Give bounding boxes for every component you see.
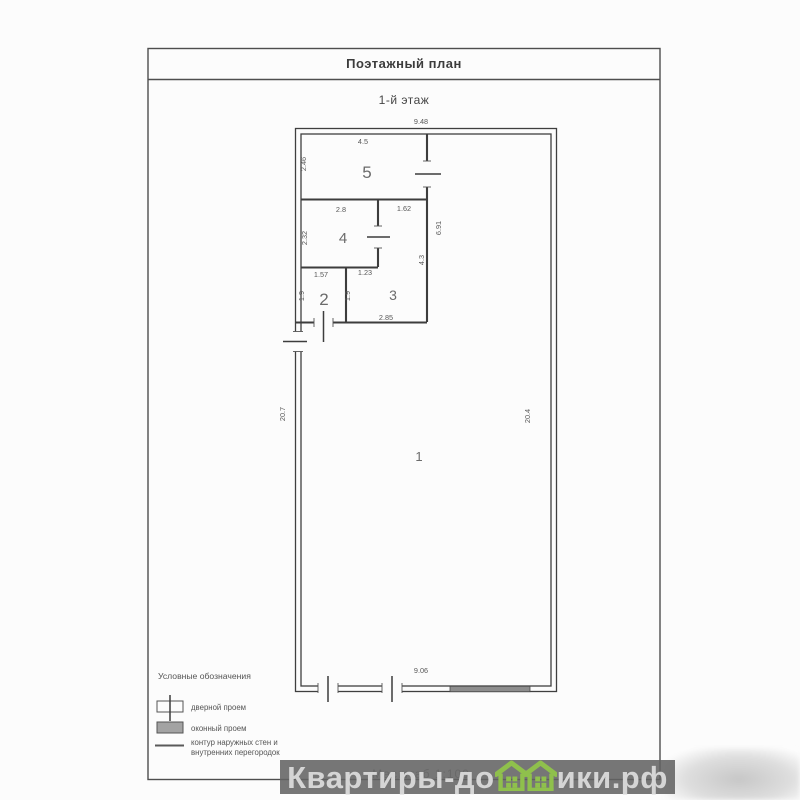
door-opening-symbol: [382, 676, 402, 702]
dim-inner-width-bottom: 9.06: [414, 666, 428, 675]
scanned-floor-plan-page: Поэтажный план 1-й этаж: [0, 0, 800, 800]
dim-overall-width-top: 9.48: [414, 117, 428, 126]
dim-right-section-depth: 6.91: [434, 221, 443, 235]
room-3-label: 3: [389, 287, 397, 303]
house-roof-icon: [496, 763, 527, 775]
door-opening-symbol: [318, 676, 338, 702]
room-5-label: 5: [362, 163, 371, 182]
dim-room4-depth: 2.32: [300, 231, 309, 245]
dim-room2-depth: 1.9: [297, 291, 306, 301]
dim-room5-depth: 2.46: [299, 157, 308, 171]
dim-left-height: 20.7: [278, 407, 287, 421]
legend: Условные обозначения дверной проем оконн…: [155, 671, 280, 757]
page-title: Поэтажный план: [346, 56, 462, 71]
houses-icon: [495, 760, 557, 794]
legend-door-item: дверной проем: [157, 695, 246, 721]
door-opening-symbol: [283, 332, 307, 352]
dim-room4-width: 2.8: [336, 205, 346, 214]
dim-hall-width: 1.62: [397, 204, 411, 213]
window-opening-symbol: [450, 686, 530, 691]
legend-wall-label-line2: внутренних перегородок: [191, 748, 280, 757]
legend-window-label: оконный проем: [191, 724, 247, 733]
door-opening-symbol: [367, 226, 390, 248]
floor-label: 1-й этаж: [379, 93, 430, 107]
floor-plan-drawing: 5 4 2 3 1 9.48 4.5 2.8 1.62 1.57 1.23 2.…: [278, 117, 557, 702]
legend-title: Условные обозначения: [158, 671, 251, 681]
document-frame: [148, 49, 660, 780]
room-1-label: 1: [415, 449, 422, 464]
interior-walls: [295, 134, 427, 323]
watermark-text-right: ики.рф: [557, 762, 668, 793]
legend-door-label: дверной проем: [191, 703, 246, 712]
dim-right-height: 20.4: [523, 409, 532, 423]
room-4-label: 4: [339, 230, 347, 247]
dim-room3-depth-right: 4.3: [417, 255, 426, 265]
house-roof-icon: [525, 763, 556, 775]
dim-room2-width: 1.57: [314, 270, 328, 279]
legend-wall-label-line1: контур наружных стен и: [191, 738, 278, 747]
house-icon: [498, 774, 524, 791]
room-2-label: 2: [319, 290, 328, 309]
dim-room3-depth: 1.9: [343, 291, 352, 301]
door-opening-symbol: [415, 161, 441, 187]
door-opening-symbol: [314, 311, 333, 342]
dim-room3-width-top: 1.23: [358, 268, 372, 277]
dim-room5-width: 4.5: [358, 137, 368, 146]
watermark-text-left: Квартиры-до: [287, 762, 494, 793]
watermark-banner: Квартиры-до ики.рф: [280, 760, 675, 794]
legend-wall-item: контур наружных стен и внутренних перего…: [155, 738, 280, 757]
window-symbol-icon: [157, 722, 183, 733]
house-icon: [527, 774, 553, 791]
legend-window-item: оконный проем: [157, 722, 247, 733]
dim-room3-width-bottom: 2.85: [379, 313, 393, 322]
